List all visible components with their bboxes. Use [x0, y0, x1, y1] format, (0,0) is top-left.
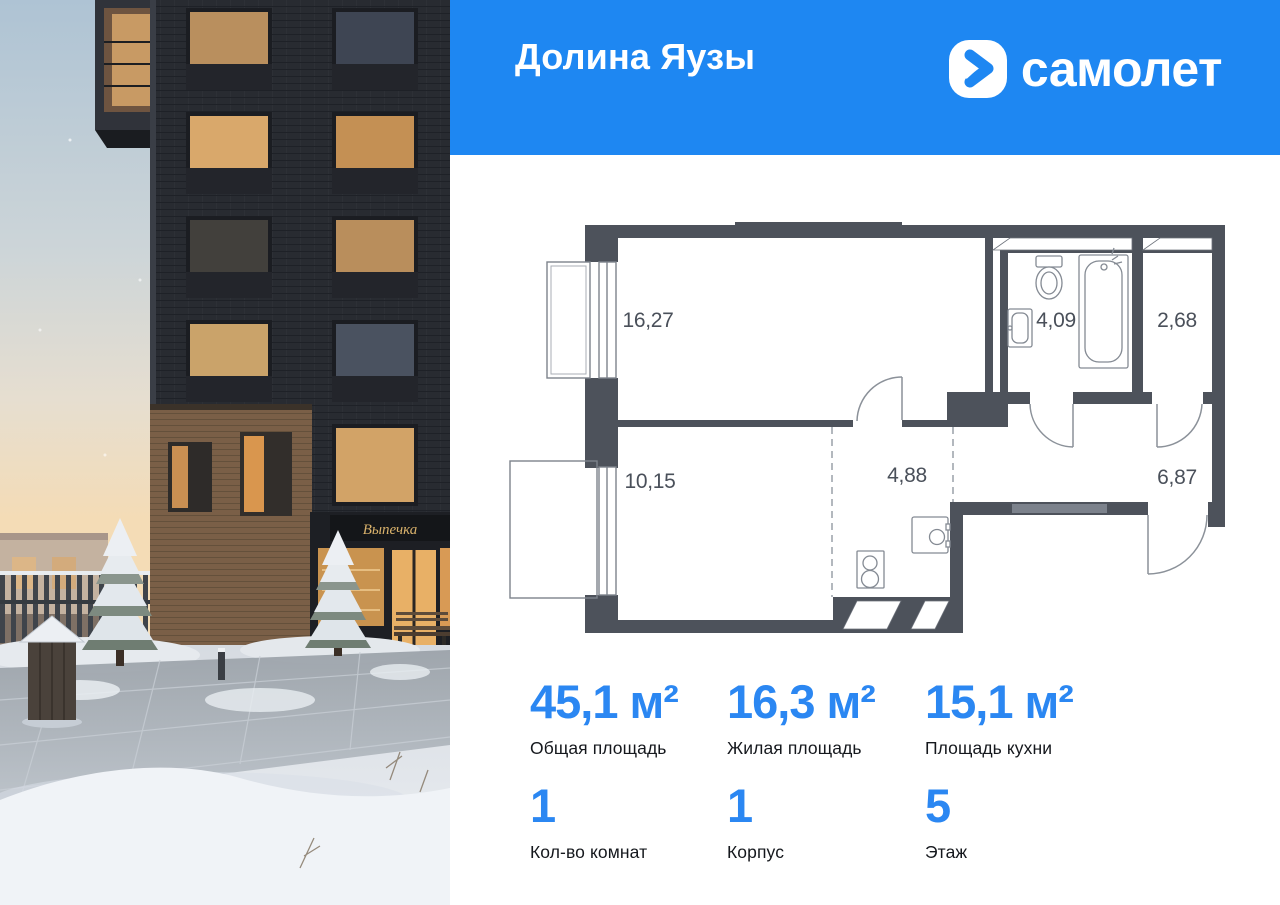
- stat-value: 16,3 м²: [727, 678, 927, 725]
- stat-value: 15,1 м²: [925, 678, 1125, 725]
- floor-plan-drawing: 16,27 4,09 2,68 10,15 4,88 6,87: [500, 210, 1245, 650]
- room-label-storage: 2,68: [1157, 309, 1197, 332]
- stat-label: Площадь кухни: [925, 738, 1125, 759]
- stat-value: 1: [530, 782, 730, 829]
- bakery-sign-text: Выпечка: [363, 522, 418, 538]
- project-title: Долина Яузы: [515, 36, 755, 78]
- stat-value: 1: [727, 782, 927, 829]
- walls: [585, 222, 1225, 633]
- header-bar: Долина Яузы самолет: [450, 0, 1280, 155]
- stat-living-area: 16,3 м² Жилая площадь: [727, 678, 927, 759]
- bathroom-fixtures: [1008, 248, 1128, 368]
- kitchen-fixtures: [857, 517, 950, 588]
- room-label-hallway: 6,87: [1157, 466, 1197, 489]
- stat-label: Кол-во комнат: [530, 842, 730, 863]
- stat-label: Корпус: [727, 842, 927, 863]
- brand-wordmark: самолет: [1021, 40, 1222, 98]
- stat-label: Жилая площадь: [727, 738, 927, 759]
- apartment-card: Выпечка: [0, 0, 1280, 905]
- stat-label: Общая площадь: [530, 738, 730, 759]
- stat-label: Этаж: [925, 842, 1125, 863]
- room-label-bedroom: 10,15: [624, 470, 675, 493]
- samolet-logo-icon: [949, 40, 1007, 98]
- stat-building: 1 Корпус: [727, 782, 927, 863]
- stat-rooms: 1 Кол-во комнат: [530, 782, 730, 863]
- entry-threshold: [1012, 504, 1107, 513]
- bollard: [218, 648, 225, 652]
- stat-kitchen-area: 15,1 м² Площадь кухни: [925, 678, 1125, 759]
- room-label-living: 16,27: [622, 309, 673, 332]
- floor-plan: 16,27 4,09 2,68 10,15 4,88 6,87: [500, 210, 1245, 650]
- stat-value: 45,1 м²: [530, 678, 730, 725]
- brand-logo: самолет: [949, 40, 1222, 98]
- room-label-kitchen: 4,88: [887, 464, 927, 487]
- building-photo: Выпечка: [0, 0, 450, 905]
- room-label-bathroom: 4,09: [1036, 309, 1076, 332]
- stat-value: 5: [925, 782, 1125, 829]
- building-photo-art: Выпечка: [0, 0, 450, 905]
- kitchen-zone-boundary: [832, 427, 953, 597]
- stat-total-area: 45,1 м² Общая площадь: [530, 678, 730, 759]
- stat-floor: 5 Этаж: [925, 782, 1125, 863]
